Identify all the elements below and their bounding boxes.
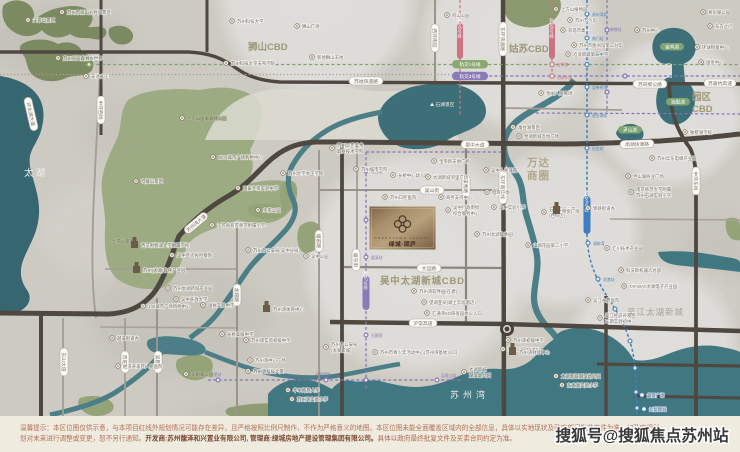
svg-text:苏州市公安局: 苏州市公安局: [331, 341, 357, 348]
svg-text:姑苏CBD: 姑苏CBD: [509, 43, 549, 55]
svg-text:吴中大道: 吴中大道: [465, 142, 484, 149]
svg-text:职业技术学院: 职业技术学院: [337, 148, 364, 155]
svg-text:中环东线: 中环东线: [692, 171, 699, 190]
svg-text:吴中太湖新城CBD: 吴中太湖新城CBD: [380, 275, 465, 287]
svg-text:何山公园: 何山公园: [452, 12, 470, 19]
svg-text:CBD: CBD: [692, 104, 713, 115]
svg-text:太湖新城: 太湖新城: [469, 366, 487, 373]
svg-text:天平山景区: 天平山景区: [33, 17, 56, 24]
svg-text:南门站: 南门站: [592, 36, 604, 41]
svg-text:金阊人民商场: 金阊人民商场: [546, 90, 573, 97]
svg-text:太湖: 太湖: [24, 167, 47, 179]
svg-text:万达: 万达: [526, 156, 550, 169]
svg-text:天鹅荡: 天鹅荡: [371, 333, 383, 338]
svg-text:NEO城市广场购物中心: NEO城市广场购物中心: [218, 154, 263, 161]
svg-text:苏州市图书馆第二分馆: 苏州市图书馆第二分馆: [579, 42, 624, 49]
svg-text:澹台湖站: 澹台湖站: [592, 113, 607, 118]
svg-text:狮山CBD: 狮山CBD: [247, 41, 288, 53]
svg-text:苏嘉杭高速: 苏嘉杭高速: [708, 80, 732, 87]
svg-text:(太湖新城): (太湖新城): [331, 347, 352, 354]
svg-text:吴中开放大学: 吴中开放大学: [181, 296, 208, 303]
svg-text:苏州乐园森林水世界: 苏州乐园森林水世界: [63, 55, 103, 62]
svg-text:郭巷站: 郭巷站: [610, 27, 622, 32]
svg-text:明悦广场: 明悦广场: [562, 208, 580, 215]
svg-text:上方山国家森林公园: 上方山国家森林公园: [187, 115, 227, 122]
svg-text:溪秀路: 溪秀路: [462, 179, 469, 194]
svg-text:吴淞江站: 吴淞江站: [441, 373, 456, 378]
svg-text:青剑湖公园: 青剑湖公园: [708, 9, 731, 16]
svg-text:吴中公园: 吴中公园: [311, 253, 329, 260]
svg-text:吴江太湖新城: 吴江太湖新城: [627, 307, 684, 317]
svg-text:科沃斯机器人总部: 科沃斯机器人总部: [626, 267, 662, 274]
svg-text:吴中人民法院: 吴中人民法院: [491, 167, 518, 174]
svg-text:宝带新天地广场: 宝带新天地广场: [439, 158, 470, 165]
svg-text:苏州口腔医院: 苏州口腔医院: [390, 194, 417, 201]
svg-text:石湖东路: 石湖东路: [557, 75, 572, 80]
svg-text:天鹅湖公园: 天鹅湖公园: [191, 371, 214, 378]
svg-text:苏州湾: 苏州湾: [450, 389, 489, 400]
svg-text:苏州湾北: 苏州湾北: [592, 12, 607, 17]
svg-text:东环南延线: 东环南延线: [499, 175, 506, 199]
svg-text:苏州科技大学天平学院: 苏州科技大学天平学院: [231, 60, 276, 67]
svg-text:经济开发区人民医院: 经济开发区人民医院: [123, 363, 163, 370]
svg-text:轨交3号线: 轨交3号线: [460, 73, 481, 80]
svg-text:苏州石湖实验小学: 苏州石湖实验小学: [636, 192, 672, 199]
svg-text:湖滨幼儿园: 湖滨幼儿园: [469, 372, 492, 379]
svg-text:南京师范大学附属: 南京师范大学附属: [636, 186, 671, 193]
svg-text:苏州太湖新城产业园: 苏州太湖新城产业园: [173, 285, 213, 292]
svg-text:苏州科技大学: 苏州科技大学: [237, 18, 264, 25]
svg-text:轨交6号线: 轨交6号线: [549, 16, 555, 38]
svg-text:国泰宝带实验中学: 国泰宝带实验中学: [243, 185, 279, 192]
svg-text:苏州大学文正学院: 苏州大学文正学院: [288, 170, 324, 177]
svg-text:清树湾: 清树湾: [593, 241, 605, 246]
svg-text:东太湖实验小学: 东太湖实验小学: [567, 382, 598, 389]
svg-text:宝带桥南: 宝带桥南: [592, 85, 607, 90]
svg-text:狮山广场: 狮山广场: [302, 23, 320, 30]
svg-text:苏州市公安局(吴中分局): 苏州市公安局(吴中分局): [253, 247, 300, 254]
svg-text:东环快速路: 东环快速路: [499, 27, 506, 51]
svg-text:苏州湾实验小学: 苏州湾实验小学: [297, 396, 328, 403]
svg-text:绿城·颂庐: 绿城·颂庐: [389, 240, 417, 248]
svg-text:划对未来进行调整或变更，恕不另行通知。开发商:苏州馥泽和兴置: 划对未来进行调整或变更，恕不另行通知。开发商:苏州馥泽和兴置业有限公司, 管理商…: [20, 434, 516, 443]
svg-text:苏州华东电梯产业园: 苏州华东电梯产业园: [657, 155, 697, 162]
svg-text:金湖新城吾悦广场: 金湖新城吾悦广场: [524, 133, 560, 140]
svg-text:苏州湾体育中心: 苏州湾体育中心: [273, 306, 304, 313]
svg-text:轨交1号线: 轨交1号线: [460, 61, 481, 68]
svg-text:⛰ 石湖景区: ⛰ 石湖景区: [430, 101, 455, 108]
svg-text:140城市广场购物中心: 140城市广场购物中心: [148, 303, 191, 310]
svg-text:苏州湾实验初级中学: 苏州湾实验初级中学: [251, 337, 291, 344]
svg-text:天池农庄: 天池农庄: [91, 73, 109, 80]
svg-text:东山大道: 东山大道: [60, 352, 67, 371]
svg-text:沧浪新城第二中学: 沧浪新城第二中学: [573, 51, 609, 58]
svg-text:国金中心: 国金中心: [706, 59, 724, 66]
svg-text:澹台湖景区: 澹台湖景区: [518, 124, 541, 131]
svg-text:云梨路站: 云梨路站: [649, 406, 667, 413]
svg-text:苏州湾软件园(在建): 苏州湾软件园(在建): [419, 288, 458, 295]
svg-text:蠡墅广场: 蠡墅广场: [647, 392, 665, 399]
svg-text:宝带路: 宝带路: [557, 62, 569, 67]
svg-text:山湖花园第二小学: 山湖花园第二小学: [533, 242, 569, 249]
svg-text:吴中行政审批: 吴中行政审批: [453, 204, 480, 211]
svg-text:商圈: 商圈: [527, 169, 550, 182]
svg-text:地铁7号线: 地铁7号线: [363, 269, 369, 290]
svg-text:尹山湖: 尹山湖: [623, 127, 637, 134]
svg-text:吴江永鼎医院: 吴江永鼎医院: [593, 297, 620, 304]
svg-text:苏州湾中心广场: 苏州湾中心广场: [255, 357, 286, 364]
svg-text:双塔市集: 双塔市集: [568, 27, 586, 34]
svg-text:三期实验初中: 三期实验初中: [605, 318, 631, 325]
svg-text:TAFWAY太湖电子产业园: TAFWAY太湖电子产业园: [629, 283, 678, 290]
svg-text:园区: 园区: [692, 92, 712, 103]
svg-text:吴山街: 吴山街: [425, 187, 440, 194]
svg-text:沪常高速: 沪常高速: [413, 320, 432, 327]
svg-text:商务支持中心: 商务支持中心: [446, 194, 473, 201]
svg-text:西交利物浦大学附属学校: 西交利物浦大学附属学校: [141, 242, 190, 249]
svg-text:苏州太湖软件园: 苏州太湖软件园: [482, 231, 513, 238]
svg-text:长桥中心幼儿园: 长桥中心幼儿园: [398, 172, 429, 179]
svg-text:苏州市阳山名胜风景区: 苏州市阳山名胜风景区: [67, 9, 112, 16]
svg-text:望湖亚朵(湖上云居酒店): 望湖亚朵(湖上云居酒店): [429, 299, 476, 306]
svg-text:江苏省新苏师范附属小学: 江苏省新苏师范附属小学: [217, 222, 266, 229]
svg-text:苏州湾科技大厦: 苏州湾科技大厦: [253, 368, 284, 375]
svg-text:花港站: 花港站: [603, 277, 615, 282]
svg-text:郭巷街道办: 郭巷街道办: [593, 205, 616, 212]
svg-text:汇通湾5G研发园办公入口: 汇通湾5G研发园办公入口: [432, 310, 482, 317]
svg-text:红庄站: 红庄站: [592, 146, 604, 151]
svg-text:环球财富中心: 环球财富中心: [702, 44, 729, 51]
svg-text:旭辉广场: 旭辉广场: [492, 189, 510, 196]
svg-text:苏州湾财智中心: 苏州湾财智中心: [519, 349, 550, 356]
svg-text:苏福快速路: 苏福快速路: [354, 78, 378, 85]
svg-text:汇川技术产业园: 汇川技术产业园: [612, 245, 643, 252]
svg-text:东方之门: 东方之门: [715, 23, 733, 30]
svg-text:天鹅荡路: 天鹅荡路: [315, 372, 330, 377]
svg-text:苏州节气馆: 苏州节气馆: [575, 17, 598, 24]
svg-text:塘前路: 塘前路: [315, 234, 322, 249]
svg-text:上方山植物园: 上方山植物园: [561, 6, 588, 13]
svg-text:文运路: 文运路: [422, 265, 437, 272]
svg-text:宝带公园: 宝带公园: [263, 207, 281, 214]
svg-text:搜狐号@搜狐焦点苏州站: 搜狐号@搜狐焦点苏州站: [555, 426, 729, 445]
svg-text:吴中实验小学: 吴中实验小学: [499, 204, 526, 211]
svg-text:苏州湾初级中学: 苏州湾初级中学: [513, 337, 544, 344]
svg-text:综合服务中心: 综合服务中心: [453, 210, 480, 217]
svg-text:中环西线: 中环西线: [97, 100, 104, 119]
svg-text:越溪街道办: 越溪街道办: [117, 335, 140, 342]
svg-text:穹窿山景区: 穹窿山景区: [141, 178, 164, 185]
svg-text:独墅湖学校: 独墅湖学校: [690, 129, 713, 136]
svg-text:轨交5号线: 轨交5号线: [457, 16, 463, 38]
svg-text:新地狮山天地: 新地狮山天地: [317, 54, 344, 61]
svg-text:太湖新城邻里广场: 太湖新城邻里广场: [433, 174, 469, 181]
svg-text:盘溪站: 盘溪站: [371, 255, 383, 260]
svg-text:金鸡湖: 金鸡湖: [665, 44, 679, 51]
svg-text:苏州市青少年活动中心(苏州湾基地)入口: 苏州市青少年活动中心(苏州湾基地)入口: [380, 349, 458, 356]
svg-text:GREENTOWN LEGACY: GREENTOWN LEGACY: [374, 236, 431, 240]
svg-text:长桥高级中学: 长桥高级中学: [227, 331, 254, 338]
svg-text:太湖新城湖滨幼儿园: 太湖新城湖滨幼儿园: [561, 373, 601, 380]
svg-text:苏州城市学院: 苏州城市学院: [361, 166, 388, 173]
svg-text:苏州(太湖)软件产业园: 苏州(太湖)软件产业园: [143, 267, 186, 274]
svg-text:西环南延: 西环南延: [431, 28, 438, 47]
svg-text:苏州工艺美术: 苏州工艺美术: [337, 142, 364, 149]
svg-text:国裕实验中学: 国裕实验中学: [208, 302, 235, 309]
svg-text:独墅湖: 独墅湖: [671, 99, 685, 106]
svg-text:塘东街: 塘东街: [352, 253, 359, 268]
svg-text:尹山湖商业广场: 尹山湖商业广场: [633, 173, 664, 180]
svg-text:苏州中心: 苏州中心: [642, 27, 660, 34]
svg-text:华中师范大学: 华中师范大学: [293, 387, 320, 394]
svg-text:苏同黎公路: 苏同黎公路: [638, 81, 662, 88]
svg-text:吴中区人民检察院: 吴中区人民检察院: [177, 252, 213, 259]
svg-text:龙翔路: 龙翔路: [233, 288, 240, 303]
